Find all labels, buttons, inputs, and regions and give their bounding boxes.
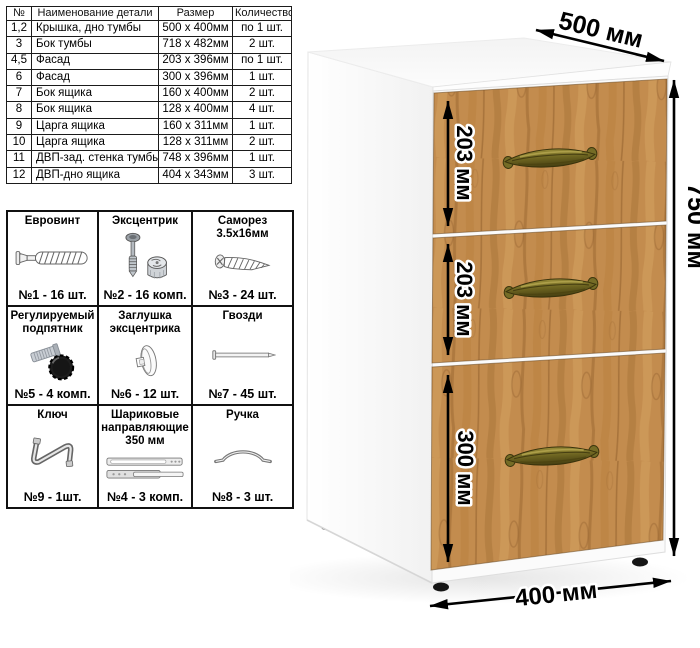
part-number: 6 (7, 69, 32, 85)
table-row: 3Бок тумбы718 х 482мм2 шт. (7, 37, 292, 53)
hardware-item-nails: Гвозди №7 - 45 шт. (193, 307, 292, 404)
part-name: Фасад (32, 53, 159, 69)
part-number: 9 (7, 118, 32, 134)
part-size: 500 х 400мм (159, 21, 233, 37)
hardware-item-slides: Шариковые направляющие 350 мм №4 - 3 ком… (99, 406, 191, 507)
part-qty: 4 шт. (233, 102, 292, 118)
eccentric-cam-icon (101, 228, 189, 288)
part-size: 203 х 396мм (159, 53, 233, 69)
cabinet-foot-front-right (632, 558, 648, 567)
part-size: 718 х 482мм (159, 37, 233, 53)
part-name: Бок тумбы (32, 37, 159, 53)
hardware-item-handle: Ручка №8 - 3 шт. (193, 406, 292, 507)
part-qty: 2 шт. (233, 86, 292, 102)
table-row: 8Бок ящика128 х 400мм4 шт. (7, 102, 292, 118)
self-tapping-screw-icon (195, 241, 290, 288)
hardware-item-camcover: Заглушка эксцентрика №6 - 12 шт. (99, 307, 191, 404)
part-number: 11 (7, 151, 32, 167)
bow-handle-icon (195, 422, 290, 490)
table-row: 7Бок ящика160 х 400мм2 шт. (7, 86, 292, 102)
part-name: ДВП-дно ящика (32, 167, 159, 183)
part-qty: 3 шт. (233, 167, 292, 183)
col-header-part-name: Наименование детали (32, 7, 159, 21)
hardware-item-count: №9 - 1шт. (24, 490, 82, 505)
cabinet-side-panel (307, 52, 433, 583)
part-qty: 1 шт. (233, 118, 292, 134)
hardware-item-count: №6 - 12 шт. (111, 387, 179, 402)
col-header-number: № (7, 7, 32, 21)
part-name: Фасад (32, 69, 159, 85)
nail-icon (195, 323, 290, 387)
hardware-item-title: Регулируемый подпятник (10, 310, 95, 336)
hardware-item-title: Шариковые направляющие 350 мм (101, 409, 189, 448)
part-qty: 2 шт. (233, 135, 292, 151)
col-header-quantity: Количество (233, 7, 292, 21)
part-size: 748 х 396мм (159, 151, 233, 167)
dimension-label-height: 750 мм (682, 183, 700, 269)
confirmat-screw-icon (10, 228, 95, 288)
part-number: 4,5 (7, 53, 32, 69)
table-row: 4,5Фасад203 х 396ммпо 1 шт. (7, 53, 292, 69)
part-size: 128 х 311мм (159, 135, 233, 151)
hardware-item-title: Заглушка эксцентрика (101, 310, 189, 336)
col-header-size: Размер (159, 7, 233, 21)
hardware-item-count: №8 - 3 шт. (212, 490, 273, 505)
hardware-item-count: №3 - 24 шт. (208, 288, 276, 303)
hardware-item-title: Ключ (37, 409, 67, 422)
hardware-item-count: №7 - 45 шт. (208, 387, 276, 402)
part-size: 404 х 343мм (159, 167, 233, 183)
hardware-item-confirmat: Евровинт №1 - 16 шт. (8, 212, 97, 305)
hardware-item-title: Эксцентрик (112, 215, 178, 228)
parts-table-header-row: № Наименование детали Размер Количество (7, 7, 292, 21)
table-row: 12ДВП-дно ящика404 х 343мм3 шт. (7, 167, 292, 183)
cabinet-drawing: 500 мм 750 мм 203 мм 203 мм 300 мм 400 м… (290, 0, 700, 648)
part-number: 10 (7, 135, 32, 151)
part-number: 12 (7, 167, 32, 183)
part-name: Бок ящика (32, 102, 159, 118)
hardware-item-key: Ключ №9 - 1шт. (8, 406, 97, 507)
part-name: ДВП-зад. стенка тумбы (32, 151, 159, 167)
hardware-item-count: №4 - 3 комп. (107, 490, 183, 505)
hardware-item-count: №2 - 16 комп. (103, 288, 186, 303)
part-qty: 2 шт. (233, 37, 292, 53)
hardware-item-selftapper: Саморез 3.5х16мм №3 - 24 шт. (193, 212, 292, 305)
hardware-item-count: №5 - 4 комп. (14, 387, 90, 402)
hardware-item-foot: Регулируемый подпятник №5 - 4 комп. (8, 307, 97, 404)
part-qty: 1 шт. (233, 69, 292, 85)
part-size: 300 х 396мм (159, 69, 233, 85)
part-number: 8 (7, 102, 32, 118)
part-name: Царга ящика (32, 135, 159, 151)
hardware-item-eccentric: Эксцентрик №2 - 16 комп. (99, 212, 191, 305)
part-qty: 1 шт. (233, 151, 292, 167)
hardware-item-title: Гвозди (222, 310, 262, 323)
table-row: 10Царга ящика128 х 311мм2 шт. (7, 135, 292, 151)
hex-key-icon (10, 422, 95, 490)
hardware-item-title: Саморез 3.5х16мм (195, 215, 290, 241)
ball-bearing-slides-icon (101, 448, 189, 490)
part-size: 128 х 400мм (159, 102, 233, 118)
part-name: Бок ящика (32, 86, 159, 102)
part-number: 1,2 (7, 21, 32, 37)
cabinet-foot-front-left (433, 583, 449, 592)
part-name: Царга ящика (32, 118, 159, 134)
table-row: 9Царга ящика160 х 311мм1 шт. (7, 118, 292, 134)
hardware-item-title: Ручка (226, 409, 259, 422)
hardware-item-count: №1 - 16 шт. (18, 288, 86, 303)
part-name: Крышка, дно тумбы (32, 21, 159, 37)
dimension-label-drawer-1: 203 мм (452, 125, 477, 200)
part-size: 160 х 400мм (159, 86, 233, 102)
table-row: 11ДВП-зад. стенка тумбы748 х 396мм1 шт. (7, 151, 292, 167)
part-qty: по 1 шт. (233, 53, 292, 69)
part-qty: по 1 шт. (233, 21, 292, 37)
table-row: 1,2Крышка, дно тумбы500 х 400ммпо 1 шт. (7, 21, 292, 37)
part-number: 7 (7, 86, 32, 102)
adjustable-foot-icon (10, 336, 95, 387)
part-number: 3 (7, 37, 32, 53)
dimension-label-drawer-3: 300 мм (453, 430, 478, 505)
cam-cover-icon (101, 336, 189, 387)
hardware-item-title: Евровинт (25, 215, 81, 228)
parts-table: № Наименование детали Размер Количество … (6, 6, 292, 184)
part-size: 160 х 311мм (159, 118, 233, 134)
dimension-label-drawer-2: 203 мм (452, 261, 477, 336)
hardware-grid: Евровинт №1 - 16 шт. Эксцентрик (6, 210, 294, 509)
table-row: 6Фасад300 х 396мм1 шт. (7, 69, 292, 85)
